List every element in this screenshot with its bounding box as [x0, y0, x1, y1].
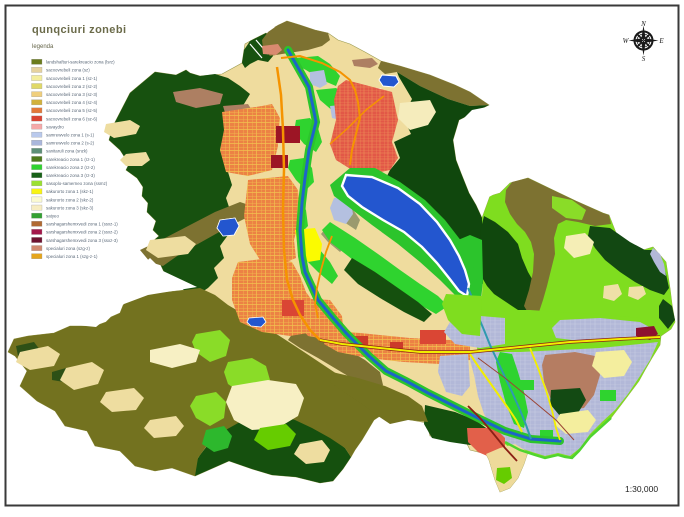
- svg-text:sarshagarshemxvedi zona 1 (ssx: sarshagarshemxvedi zona 1 (ssxz-1): [46, 222, 118, 227]
- svg-text:sarekreacio zona 1 (rz-1): sarekreacio zona 1 (rz-1): [46, 157, 95, 162]
- svg-text:sacxovrebeli zona 1 (sz-1): sacxovrebeli zona 1 (sz-1): [46, 76, 98, 81]
- svg-text:satyeo: satyeo: [46, 214, 59, 219]
- svg-text:sakurorto zona 1 (skz-1): sakurorto zona 1 (skz-1): [46, 189, 94, 194]
- svg-text:S: S: [642, 55, 646, 63]
- svg-text:sarshagarshemxvedi zona 3 (ssx: sarshagarshemxvedi zona 3 (ssxz-3): [46, 238, 118, 243]
- svg-text:sacxovrebeli zona 4 (sz-4): sacxovrebeli zona 4 (sz-4): [46, 100, 98, 105]
- svg-text:sacxovrebeli zona 5 (sz-5): sacxovrebeli zona 5 (sz-5): [46, 108, 98, 113]
- svg-text:sarshagarshemxvedi zona 2 (ssx: sarshagarshemxvedi zona 2 (ssxz-2): [46, 230, 118, 235]
- svg-text:sasoplo-samerneo zona (ssmz): sasoplo-samerneo zona (ssmz): [46, 181, 108, 186]
- svg-text:sanitaruli zona (snzk): sanitaruli zona (snzk): [46, 149, 88, 154]
- svg-text:sacxovrebeli zona (sz): sacxovrebeli zona (sz): [46, 68, 90, 73]
- svg-text:sarekreacio zona 3 (rz-3): sarekreacio zona 3 (rz-3): [46, 173, 95, 178]
- svg-text:specialuri zona 1 (szg-z-1): specialuri zona 1 (szg-z-1): [46, 254, 98, 259]
- svg-text:sakurorto zona 2 (skz-2): sakurorto zona 2 (skz-2): [46, 197, 94, 202]
- svg-text:legenda: legenda: [32, 44, 54, 50]
- svg-text:E: E: [658, 37, 664, 45]
- svg-text:samrewvelo zona 1 (s-1): samrewvelo zona 1 (s-1): [46, 133, 95, 138]
- svg-text:specialuri zona (szg-z): specialuri zona (szg-z): [46, 246, 90, 251]
- svg-text:1:30,000: 1:30,000: [625, 484, 658, 494]
- svg-text:sacxovrebeli zona 2 (sz-2): sacxovrebeli zona 2 (sz-2): [46, 84, 98, 89]
- svg-text:savaydro: savaydro: [46, 124, 64, 129]
- svg-text:landshafturi-sarekreacio zona: landshafturi-sarekreacio zona (lsrz): [46, 60, 115, 65]
- svg-text:N: N: [640, 20, 646, 28]
- svg-text:sakurorto zona 3 (skz-3): sakurorto zona 3 (skz-3): [46, 205, 94, 210]
- svg-text:sacxovrebeli zona 6 (sz-6): sacxovrebeli zona 6 (sz-6): [46, 116, 98, 121]
- svg-text:sarekreacio zona 2 (rz-2): sarekreacio zona 2 (rz-2): [46, 165, 95, 170]
- svg-text:qunqciuri zonebi: qunqciuri zonebi: [32, 24, 126, 36]
- svg-text:samrewvelo zona 2 (s-2): samrewvelo zona 2 (s-2): [46, 141, 95, 146]
- svg-text:sacxovrebeli zona 3 (sz-3): sacxovrebeli zona 3 (sz-3): [46, 92, 98, 97]
